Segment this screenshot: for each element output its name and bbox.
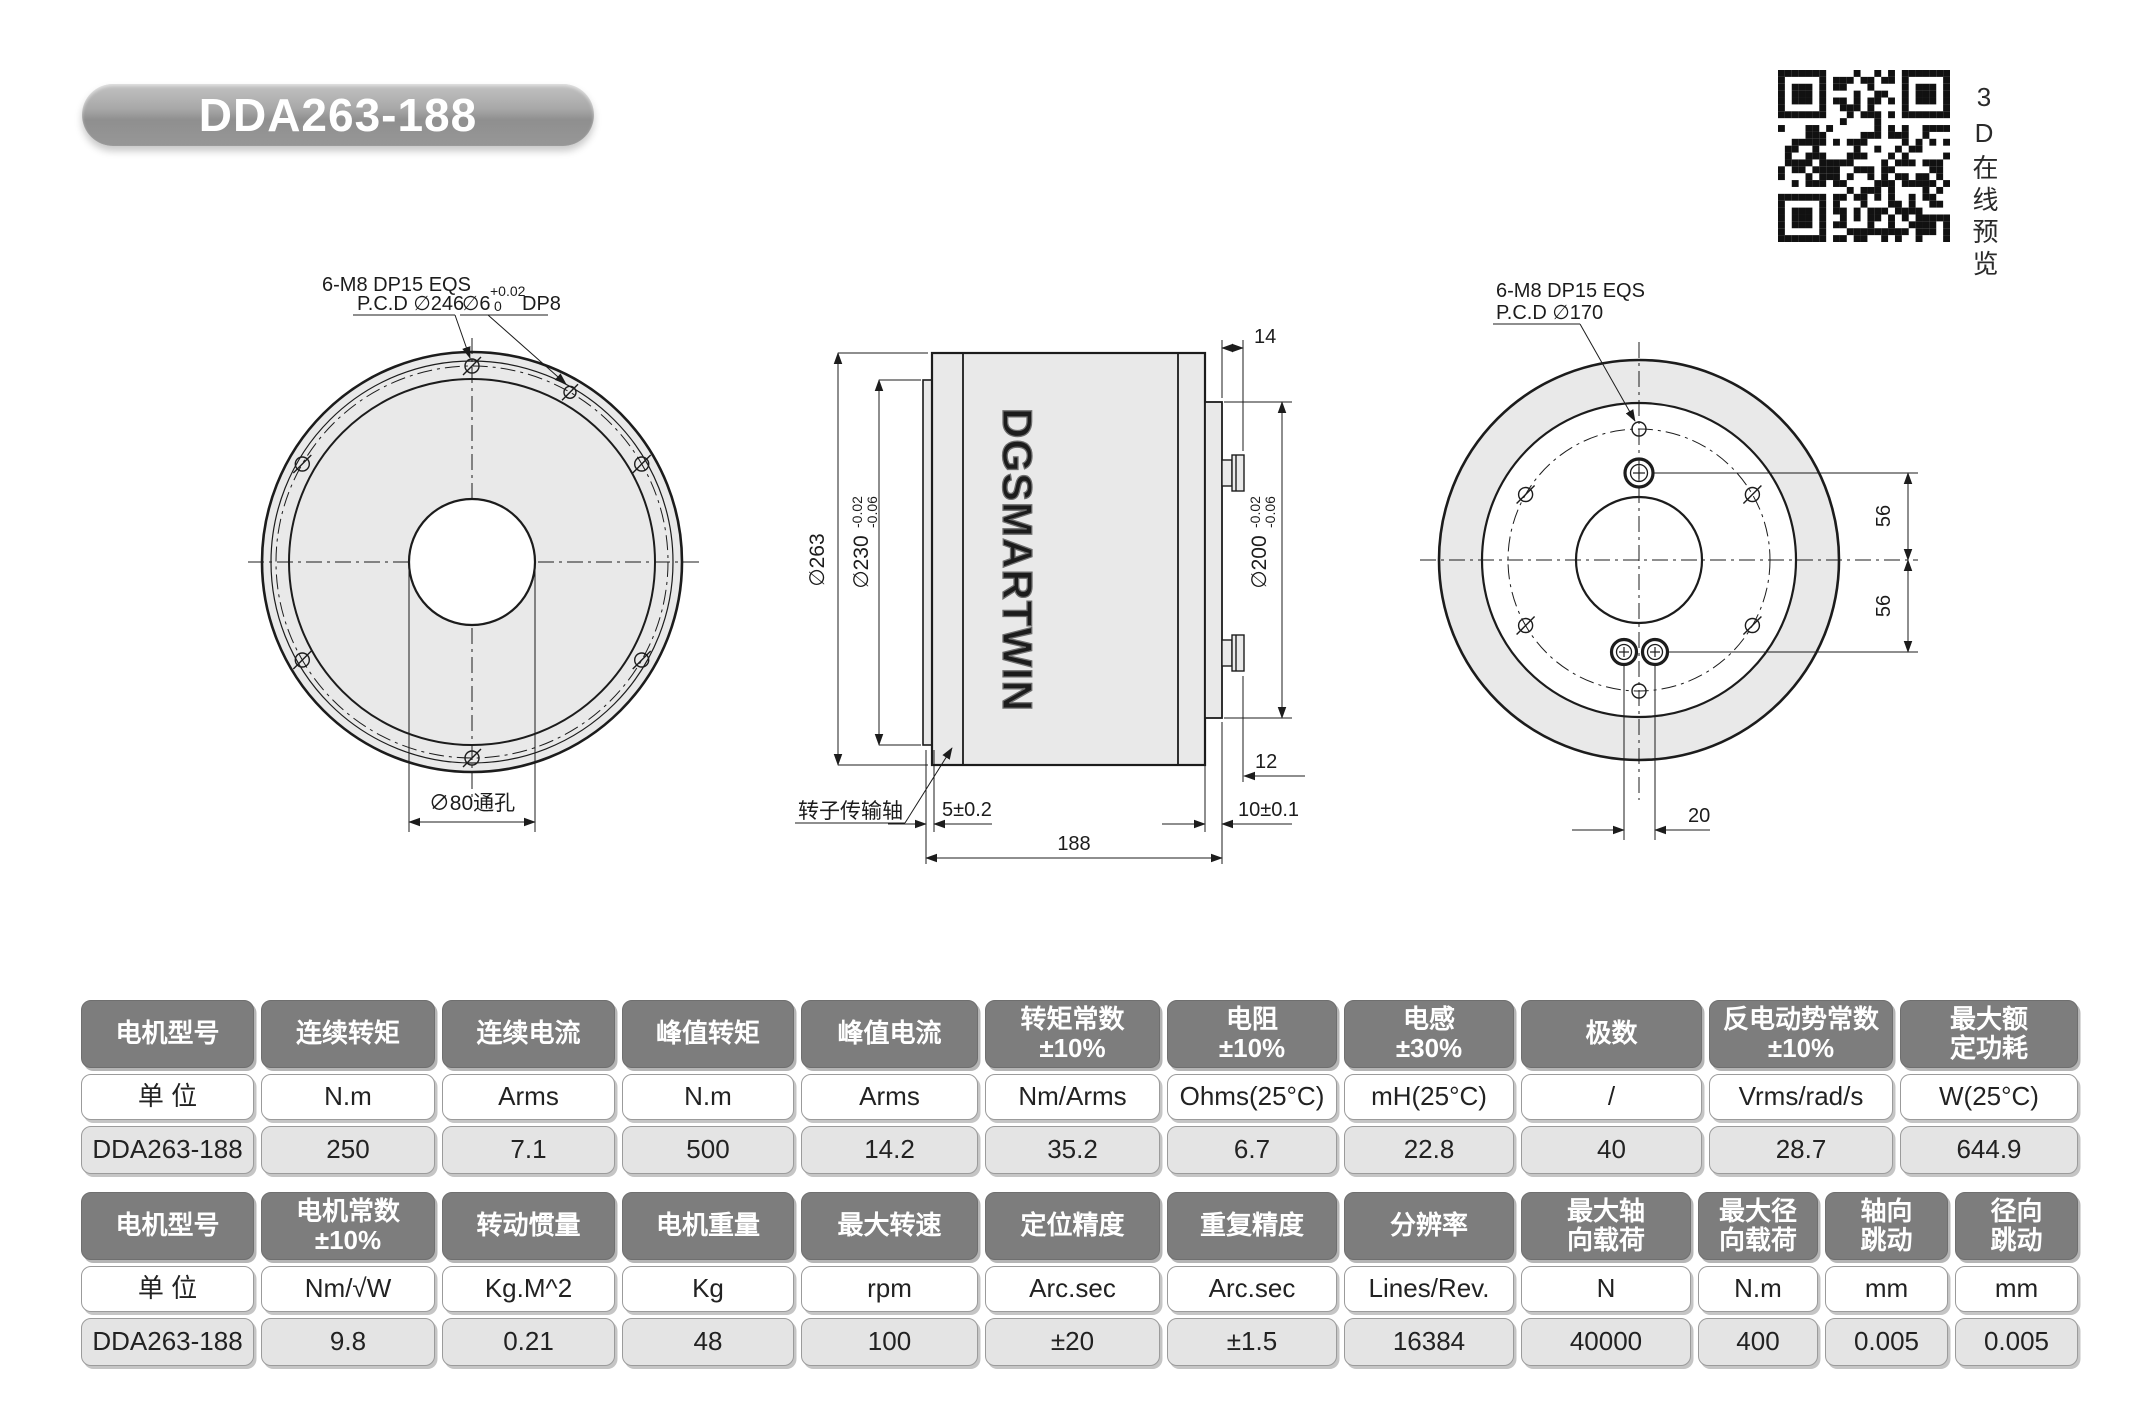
table2-unit: Arc.sec [1167, 1266, 1337, 1312]
table2-unit: Kg [622, 1266, 794, 1312]
table2-unit: N [1521, 1266, 1691, 1312]
side-dim-plate-thickness: 10±0.1 [1238, 799, 1299, 821]
table2-header: 最大转速 [801, 1192, 978, 1260]
table2-value: 40000 [1521, 1318, 1691, 1366]
datasheet-page: DDA263-188 3D在线预览 [0, 0, 2155, 1420]
table2-unit: mm [1825, 1266, 1948, 1312]
table1-unit: W(25°C) [1900, 1074, 2078, 1120]
side-dim-flange-thickness: 5±0.2 [942, 799, 992, 821]
table2-header: 电机型号 [81, 1192, 254, 1260]
table1-value: 500 [622, 1126, 794, 1174]
table1-header: 连续电流 [442, 1000, 615, 1068]
table1-value: DDA263-188 [81, 1126, 254, 1174]
side-dim-right-tol-up: -0.02 [1247, 496, 1263, 528]
side-dim-total-length: 188 [1057, 833, 1090, 855]
front-pin-tol-lower: 0 [494, 298, 502, 314]
table1-unit: N.m [261, 1074, 435, 1120]
front-view-drawing [248, 315, 704, 832]
table2-unit: Kg.M^2 [442, 1266, 615, 1312]
side-dim-plate-step: 12 [1255, 751, 1277, 773]
table1-header: 极数 [1521, 1000, 1702, 1068]
rear-dim-conn-upper: 56 [1873, 505, 1895, 527]
table2-unit: Arc.sec [985, 1266, 1160, 1312]
table1-value: 14.2 [801, 1126, 978, 1174]
table2-value: 400 [1698, 1318, 1818, 1366]
rear-dim-conn-lower: 56 [1873, 595, 1895, 617]
table1-header: 电阻 ±10% [1167, 1000, 1337, 1068]
table2-unit: mm [1955, 1266, 2078, 1312]
table1-unit: Arms [801, 1074, 978, 1120]
table2-value: 100 [801, 1318, 978, 1366]
table1-value: 250 [261, 1126, 435, 1174]
front-center-hole-label: ∅80通孔 [429, 792, 515, 815]
rear-bolt-label-line2: P.C.D ∅170 [1496, 302, 1603, 324]
side-dim-mid-dia: ∅230 [850, 535, 873, 588]
table2-value: ±1.5 [1167, 1318, 1337, 1366]
side-cable-gland-bottom [1222, 635, 1244, 671]
table2-unit: Lines/Rev. [1344, 1266, 1514, 1312]
table1-header: 电感 ±30% [1344, 1000, 1514, 1068]
table1-header: 连续转矩 [261, 1000, 435, 1068]
table2-unit: Nm/√W [261, 1266, 435, 1312]
table1-header: 电机型号 [81, 1000, 254, 1068]
table1-value: 35.2 [985, 1126, 1160, 1174]
table1-header: 转矩常数 ±10% [985, 1000, 1160, 1068]
table2-header: 定位精度 [985, 1192, 1160, 1260]
table1-unit: Vrms/rad/s [1709, 1074, 1893, 1120]
table2-unit: rpm [801, 1266, 978, 1312]
side-dim-mid-tol-low: -0.06 [864, 496, 880, 528]
table1-header: 峰值转矩 [622, 1000, 794, 1068]
side-dim-right-dia: ∅200 [1248, 535, 1271, 588]
table2-header: 电机重量 [622, 1192, 794, 1260]
table2-header: 径向 跳动 [1955, 1192, 2078, 1260]
table2-value: 9.8 [261, 1318, 435, 1366]
rear-bolt-label-line1: 6-M8 DP15 EQS [1496, 280, 1645, 302]
table1-value: 28.7 [1709, 1126, 1893, 1174]
table1-unit: 单 位 [81, 1074, 254, 1120]
side-dim-outer-dia: ∅263 [806, 533, 829, 586]
side-dim-right-tol-low: -0.06 [1262, 496, 1278, 528]
table1-value: 22.8 [1344, 1126, 1514, 1174]
table2-header: 重复精度 [1167, 1192, 1337, 1260]
table1-unit: mH(25°C) [1344, 1074, 1514, 1120]
table1-unit: Ohms(25°C) [1167, 1074, 1337, 1120]
table2-unit: 单 位 [81, 1266, 254, 1312]
side-view-logo: DGSMARTWIN [994, 408, 1041, 712]
table1-value: 6.7 [1167, 1126, 1337, 1174]
svg-text:DGSMARTWIN: DGSMARTWIN [994, 408, 1041, 712]
table2-value: 48 [622, 1318, 794, 1366]
rear-dim-conn-spacing: 20 [1688, 805, 1710, 827]
front-bolt-label-line2: P.C.D ∅246 [357, 293, 464, 315]
table1-unit: Nm/Arms [985, 1074, 1160, 1120]
table1-unit: Arms [442, 1074, 615, 1120]
mechanical-spec-table: 电机型号 电机常数 ±10% 转动惯量 电机重量 最大转速 定位精度 重复精度 … [81, 1192, 2078, 1366]
technical-drawings: 6-M8 DP15 EQS P.C.D ∅246 ∅6 +0.02 0 DP8 … [0, 0, 2155, 980]
table2-header: 分辨率 [1344, 1192, 1514, 1260]
table1-unit: N.m [622, 1074, 794, 1120]
side-dim-mid-tol-up: -0.02 [849, 496, 865, 528]
table2-value: DDA263-188 [81, 1318, 254, 1366]
table1-value: 7.1 [442, 1126, 615, 1174]
front-pin-label-depth: DP8 [522, 293, 561, 315]
table2-header: 轴向 跳动 [1825, 1192, 1948, 1260]
table2-value: 16384 [1344, 1318, 1514, 1366]
table2-header: 电机常数 ±10% [261, 1192, 435, 1260]
side-dim-gland-depth: 14 [1254, 326, 1276, 348]
table2-value: ±20 [985, 1318, 1160, 1366]
table1-value: 644.9 [1900, 1126, 2078, 1174]
table2-value: 0.005 [1955, 1318, 2078, 1366]
table2-value: 0.005 [1825, 1318, 1948, 1366]
table2-header: 最大轴 向载荷 [1521, 1192, 1691, 1260]
table1-header: 峰值电流 [801, 1000, 978, 1068]
table2-value: 0.21 [442, 1318, 615, 1366]
table2-header: 最大径 向载荷 [1698, 1192, 1818, 1260]
front-pin-label-dia: ∅6 [462, 293, 491, 315]
side-cable-gland-top [1222, 455, 1244, 491]
side-view-drawing [795, 340, 1305, 864]
table2-header: 转动惯量 [442, 1192, 615, 1260]
front-pin-tol-upper: +0.02 [490, 283, 526, 299]
table1-header: 最大额 定功耗 [1900, 1000, 2078, 1068]
table1-unit: / [1521, 1074, 1702, 1120]
electrical-spec-table: 电机型号 连续转矩 连续电流 峰值转矩 峰值电流 转矩常数 ±10% 电阻 ±1… [81, 1000, 2078, 1174]
table2-unit: N.m [1698, 1266, 1818, 1312]
rear-view-drawing [1420, 324, 1918, 840]
table1-value: 40 [1521, 1126, 1702, 1174]
side-shaft-label: 转子传输轴 [798, 800, 903, 823]
table1-header: 反电动势常数 ±10% [1709, 1000, 1893, 1068]
